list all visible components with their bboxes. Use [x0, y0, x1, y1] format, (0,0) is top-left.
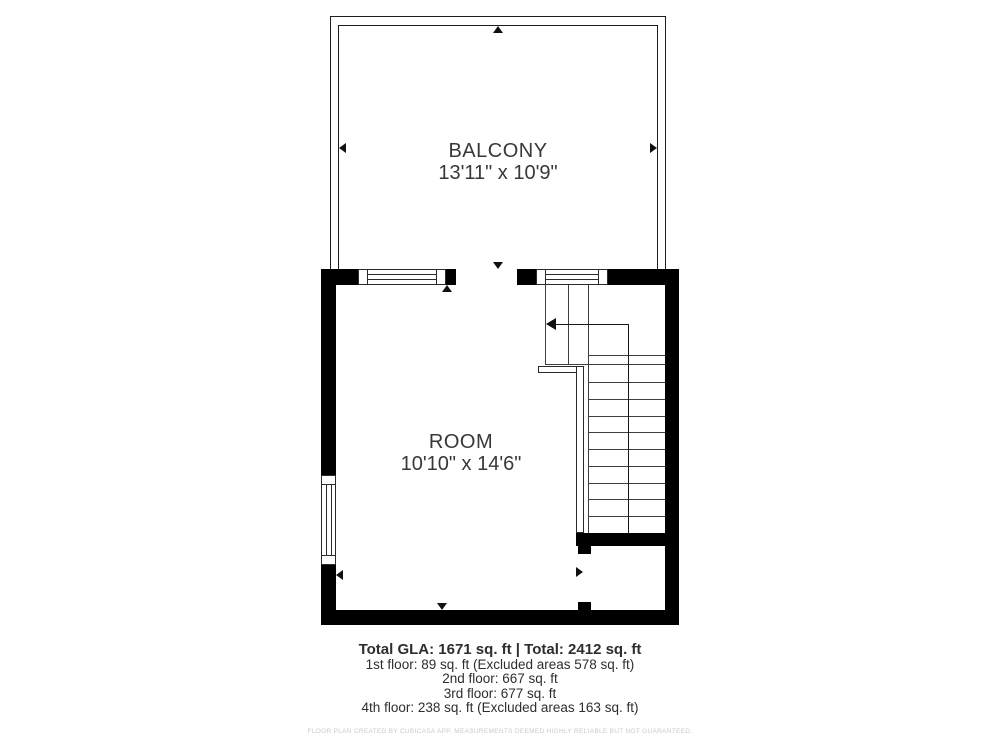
- room-wall-right: [665, 269, 679, 625]
- stair-boundary-line: [545, 364, 665, 365]
- stair-partition-wall: [576, 366, 584, 533]
- closet-wall-stub: [578, 546, 591, 554]
- window-top-right-icon: [536, 269, 608, 285]
- stair-bottom-wall: [576, 533, 679, 546]
- floor-plan-page: BALCONY 13'11" x 10'9": [0, 0, 1000, 750]
- stair-walk-line: [628, 324, 629, 533]
- stair-tread-line: [588, 499, 665, 500]
- room-extent-arrow-up-icon: [442, 285, 452, 292]
- room-extent-arrow-down-icon: [437, 603, 447, 610]
- area-summary: Total GLA: 1671 sq. ft | Total: 2412 sq.…: [0, 641, 1000, 715]
- room-wall-top-segment: [446, 269, 456, 285]
- room-wall-top-segment: [517, 269, 536, 285]
- balcony-extent-arrow-down-icon: [493, 262, 503, 269]
- stair-tread-line: [588, 382, 665, 383]
- stair-tread-line: [588, 483, 665, 484]
- balcony-dimensions: 13'11" x 10'9": [388, 162, 608, 184]
- stair-direction-arrow-icon: [546, 318, 556, 330]
- floor-area-line-3: 3rd floor: 677 sq. ft: [0, 687, 1000, 701]
- closet-wall-stub: [578, 602, 591, 611]
- stair-tread-line: [588, 355, 665, 356]
- balcony-label-block: BALCONY 13'11" x 10'9": [388, 140, 608, 184]
- balcony-extent-arrow-right-icon: [650, 143, 657, 153]
- floor-area-line-2: 2nd floor: 667 sq. ft: [0, 672, 1000, 686]
- floor-area-line-1: 1st floor: 89 sq. ft (Excluded areas 578…: [0, 658, 1000, 672]
- balcony-name: BALCONY: [388, 140, 608, 162]
- room-name: ROOM: [351, 431, 571, 453]
- room-extent-arrow-left-icon: [336, 570, 343, 580]
- balcony-extent-arrow-up-icon: [493, 26, 503, 33]
- room-label-block: ROOM 10'10" x 14'6": [351, 431, 571, 475]
- stair-tread-line: [588, 466, 665, 467]
- stair-tread-line: [588, 516, 665, 517]
- total-gla-line: Total GLA: 1671 sq. ft | Total: 2412 sq.…: [0, 641, 1000, 658]
- stair-tread-line: [588, 399, 665, 400]
- room-dimensions: 10'10" x 14'6": [351, 453, 571, 475]
- stair-tread-line: [588, 285, 589, 533]
- stair-walk-line: [554, 324, 629, 325]
- disclaimer-text: FLOOR PLAN CREATED BY CUBICASA APP. MEAS…: [0, 728, 1000, 735]
- balcony-extent-arrow-left-icon: [339, 143, 346, 153]
- floor-area-line-4: 4th floor: 238 sq. ft (Excluded areas 16…: [0, 701, 1000, 715]
- window-left-icon: [321, 475, 336, 565]
- balcony-opening: [456, 269, 517, 285]
- room-extent-arrow-right-icon: [576, 567, 583, 577]
- stair-tread-line: [588, 432, 665, 433]
- window-top-left-icon: [358, 269, 446, 285]
- room-wall-left-segment: [321, 269, 336, 475]
- stair-tread-line: [588, 416, 665, 417]
- stair-tread-line: [588, 449, 665, 450]
- room-wall-bottom: [321, 610, 679, 625]
